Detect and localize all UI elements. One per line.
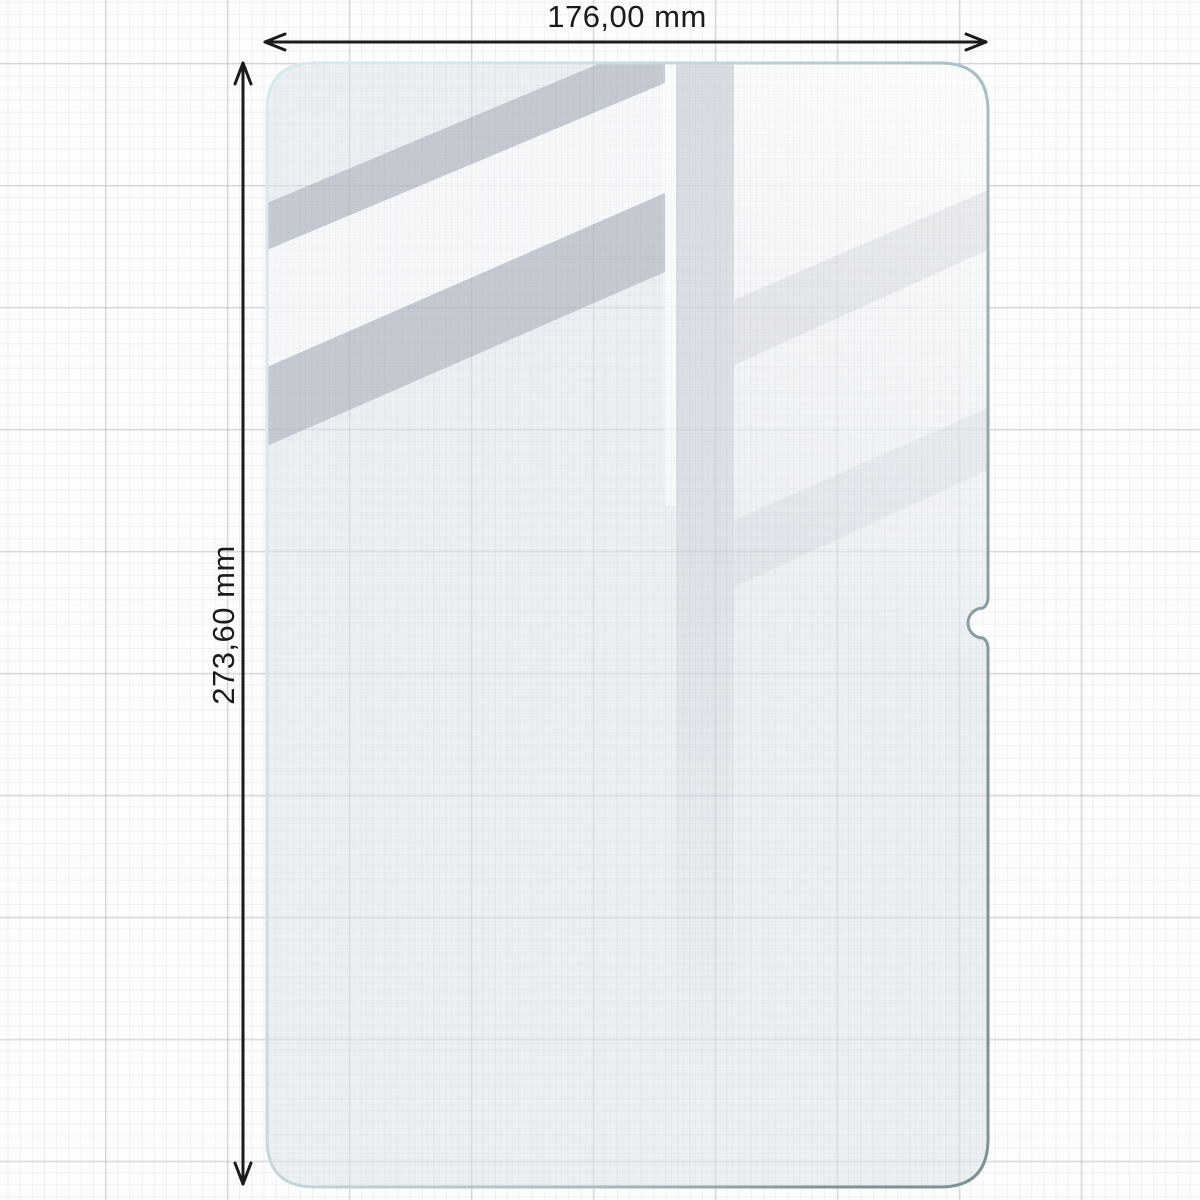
- width-dimension-label: 176,00 mm: [547, 0, 707, 35]
- glass-reflections: [267, 36, 988, 1187]
- width-dimension-arrow: [265, 34, 986, 50]
- glass-texture: [267, 63, 988, 1187]
- dimension-diagram: [0, 0, 1200, 1200]
- height-dimension-label: 273,60 mm: [206, 545, 242, 705]
